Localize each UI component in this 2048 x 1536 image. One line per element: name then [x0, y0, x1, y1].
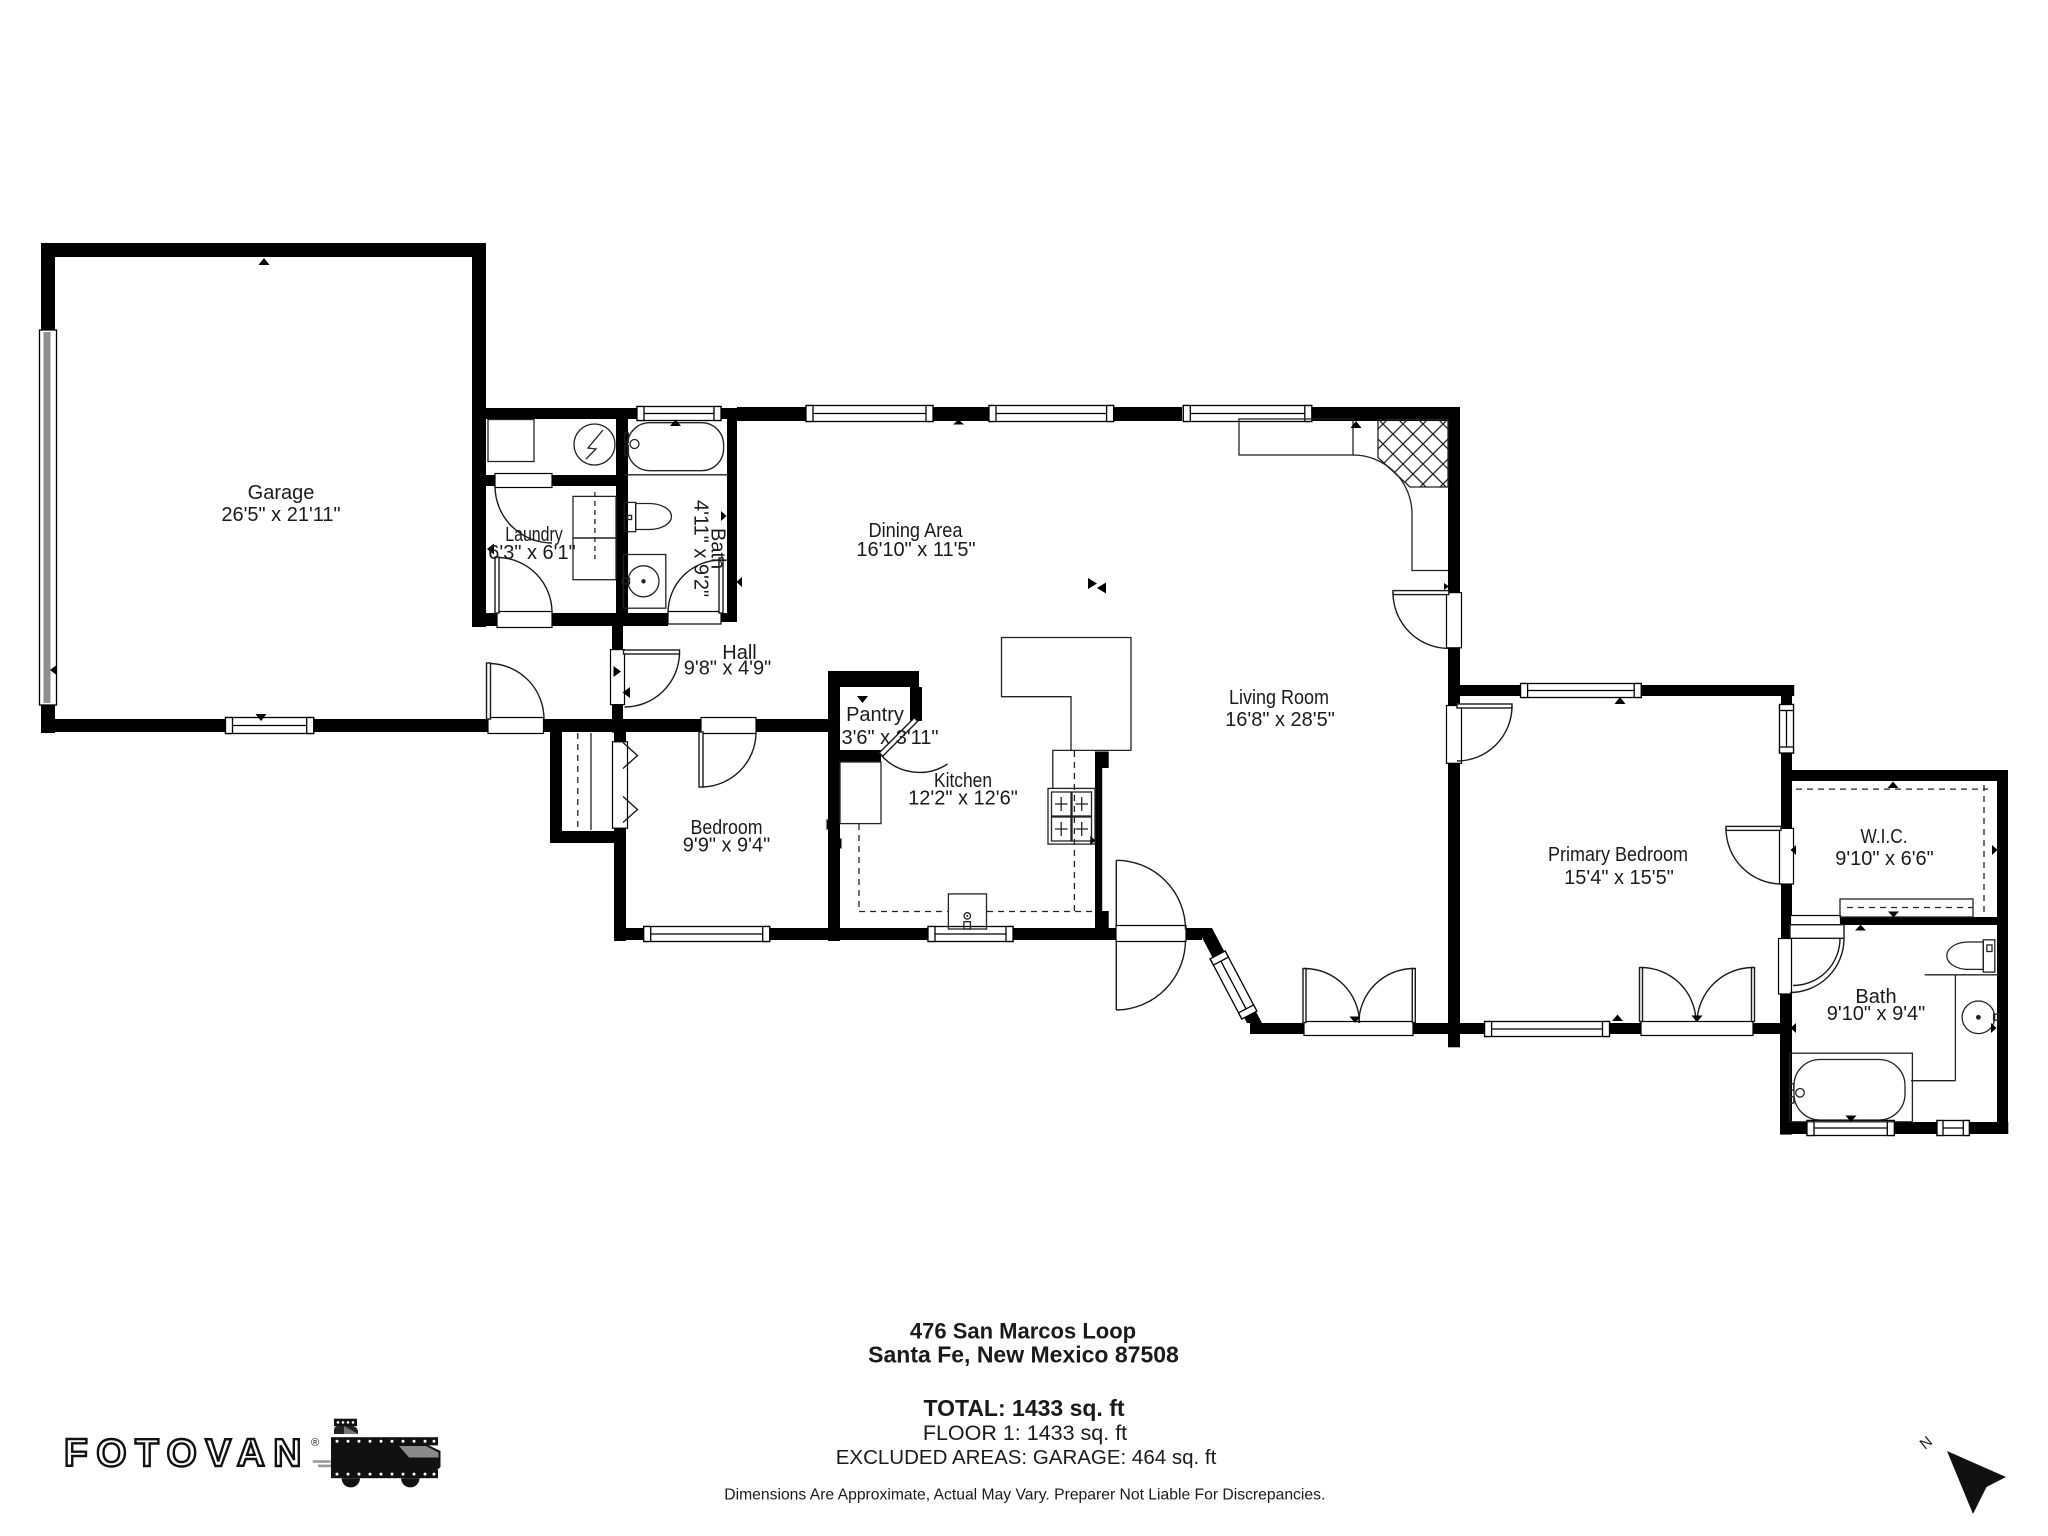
svg-text:Pantry: Pantry [846, 704, 904, 726]
svg-text:476 San Marcos Loop: 476 San Marcos Loop [910, 1319, 1136, 1344]
svg-text:16'8" x 28'5": 16'8" x 28'5" [1225, 709, 1335, 731]
svg-text:9'9" x 9'4": 9'9" x 9'4" [683, 835, 770, 857]
svg-text:4'11" x 9'2": 4'11" x 9'2" [690, 500, 712, 597]
svg-text:Living Room: Living Room [1229, 687, 1329, 709]
svg-text:9'10" x 6'6": 9'10" x 6'6" [1835, 848, 1934, 870]
svg-text:9'10" x 9'4": 9'10" x 9'4" [1827, 1003, 1926, 1025]
svg-text:®: ® [311, 1437, 319, 1449]
svg-text:EXCLUDED AREAS: GARAGE: 464 sq: EXCLUDED AREAS: GARAGE: 464 sq. ft [836, 1446, 1217, 1469]
svg-text:15'4" x 15'5": 15'4" x 15'5" [1564, 867, 1674, 889]
svg-text:6'3" x 6'1": 6'3" x 6'1" [488, 542, 575, 564]
svg-text:12'2" x 12'6": 12'2" x 12'6" [908, 788, 1018, 810]
svg-text:Primary Bedroom: Primary Bedroom [1548, 844, 1688, 866]
svg-text:16'10" x 11'5": 16'10" x 11'5" [856, 539, 975, 561]
svg-text:TOTAL: 1433 sq. ft: TOTAL: 1433 sq. ft [923, 1395, 1124, 1421]
svg-text:FLOOR 1: 1433 sq. ft: FLOOR 1: 1433 sq. ft [923, 1421, 1127, 1445]
svg-text:3'6" x 3'11": 3'6" x 3'11" [841, 727, 938, 749]
svg-text:9'8" x 4'9": 9'8" x 4'9" [684, 658, 771, 680]
svg-text:Santa Fe, New Mexico 87508: Santa Fe, New Mexico 87508 [868, 1342, 1179, 1368]
svg-text:W.I.C.: W.I.C. [1861, 826, 1908, 848]
svg-text:Dimensions Are Approximate, Ac: Dimensions Are Approximate, Actual May V… [724, 1487, 1325, 1504]
svg-text:FOTOVAN: FOTOVAN [64, 1432, 310, 1475]
svg-text:Garage: Garage [248, 482, 315, 504]
svg-text:26'5" x 21'11": 26'5" x 21'11" [221, 504, 340, 526]
